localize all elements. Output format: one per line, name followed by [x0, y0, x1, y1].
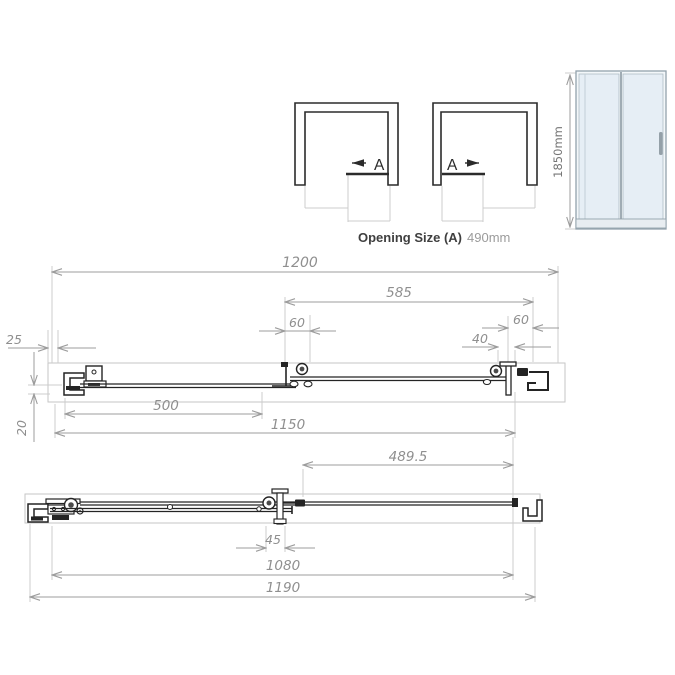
dim-585: 585 [285, 285, 533, 362]
wall-profile-left-bottom [28, 504, 48, 522]
dim-label-25: 25 [6, 332, 22, 347]
top-view-right: A [433, 103, 537, 222]
dim-label-45: 45 [265, 532, 281, 547]
dim-label-60-left: 60 [289, 315, 305, 330]
top-view-left: A [295, 103, 398, 222]
dim-60-left: 60 [259, 315, 336, 362]
dim-1150: 1150 [55, 392, 515, 438]
bottom-rail [576, 219, 666, 228]
dim-500: 500 [65, 392, 262, 419]
plan-section-top: 1200 585 60 60 40 [6, 255, 565, 442]
door-handle [659, 132, 663, 155]
dim-60-right: 60 [482, 312, 559, 362]
dim-label-500: 500 [153, 398, 179, 414]
handle-hook-section [528, 372, 548, 390]
dim-25: 25 [6, 330, 96, 363]
dim-label-1150: 1150 [271, 417, 305, 433]
height-label: 1850mm [551, 126, 565, 178]
dim-40: 40 [462, 331, 551, 362]
dim-label-1200: 1200 [282, 255, 318, 271]
dim-label-60-right: 60 [513, 312, 529, 327]
opening-size-caption: Opening Size (A)490mm [358, 230, 510, 245]
opening-size-caption-value: 490mm [467, 230, 510, 245]
end-profile-right-bottom [512, 498, 542, 521]
dim-label-1190: 1190 [266, 580, 300, 596]
dim-45: 45 [236, 526, 315, 552]
dim-label-1080: 1080 [266, 558, 300, 574]
dim-1080: 1080 [52, 526, 513, 580]
dim-label-20: 20 [14, 420, 29, 436]
technical-drawing: A A Opening Size (A)490mm 1850mm [0, 0, 675, 675]
opening-size-caption-bold: Opening Size (A) [358, 230, 462, 245]
dim-489-5: 489.5 [303, 437, 513, 580]
opening-label-a-left: A [374, 157, 385, 174]
roller-bracket-right [483, 362, 528, 395]
dim-label-40: 40 [472, 331, 488, 346]
dim-label-585: 585 [386, 285, 412, 301]
plan-section-bottom: 489.5 45 1080 1190 [25, 437, 542, 602]
glass-panel-sliding [623, 74, 663, 225]
front-elevation: 1850mm [551, 71, 666, 229]
opening-label-a-right: A [447, 157, 458, 174]
dim-label-489-5: 489.5 [389, 449, 428, 465]
roller-bracket-mid [272, 362, 312, 387]
carrier-left-bottom [46, 499, 83, 521]
